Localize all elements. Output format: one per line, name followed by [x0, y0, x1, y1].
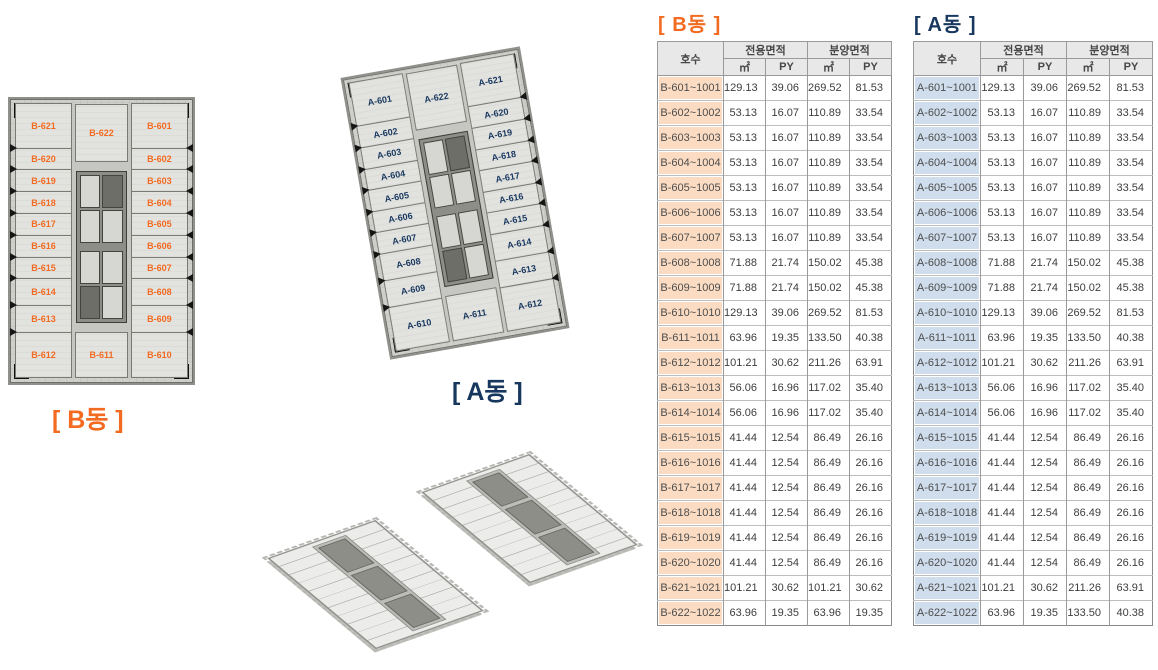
supply-py-cell: 33.54 [850, 201, 892, 226]
core-block [423, 135, 475, 208]
core-block [436, 209, 488, 282]
supply-sqm-cell: 133.50 [808, 326, 850, 351]
unit-label: A-617 [495, 170, 521, 184]
exclusive-sqm-cell: 56.06 [724, 401, 766, 426]
unit-number-cell: A-612~1012 [914, 351, 981, 376]
supply-py-cell: 33.54 [850, 101, 892, 126]
exclusive-py-cell: 16.07 [766, 126, 808, 151]
supply-py-cell: 63.91 [1110, 576, 1153, 601]
table-row: A-614~1014 56.06 16.96 117.02 35.40 [914, 401, 1153, 426]
unit-number-cell: A-619~1019 [914, 526, 981, 551]
exclusive-sqm-cell: 53.13 [981, 126, 1024, 151]
supply-py-cell: 26.16 [850, 476, 892, 501]
supply-py-cell: 33.54 [1110, 126, 1153, 151]
unit-number-cell: B-613~1013 [658, 376, 724, 401]
plan-unit: A-612 [499, 278, 561, 332]
supply-py-cell: 33.54 [1110, 201, 1153, 226]
plan-unit: B-613 [15, 305, 72, 333]
table-row: B-619~1019 41.44 12.54 86.49 26.16 [658, 526, 892, 551]
exclusive-sqm-cell: 53.13 [981, 101, 1024, 126]
supply-sqm-cell: 86.49 [808, 551, 850, 576]
exclusive-py-cell: 16.96 [766, 401, 808, 426]
table-row: A-607~1007 53.13 16.07 110.89 33.54 [914, 226, 1153, 251]
plan-unit: B-608 [131, 278, 188, 306]
supply-sqm-cell: 110.89 [808, 226, 850, 251]
supply-sqm-cell: 110.89 [808, 176, 850, 201]
supply-sqm-cell: 211.26 [1067, 576, 1110, 601]
supply-py-cell: 26.16 [850, 551, 892, 576]
unit-number-cell: B-603~1003 [658, 126, 724, 151]
table-row: B-604~1004 53.13 16.07 110.89 33.54 [658, 151, 892, 176]
unit-label: B-616 [31, 241, 56, 251]
unit-number-cell: A-602~1002 [914, 101, 981, 126]
supply-py-cell: 26.16 [1110, 451, 1153, 476]
supply-sqm-cell: 110.89 [1067, 151, 1110, 176]
plan-unit: A-610 [388, 297, 450, 351]
exclusive-py-cell: 16.07 [1024, 126, 1067, 151]
unit-label: B-604 [147, 198, 172, 208]
table-row: A-606~1006 53.13 16.07 110.89 33.54 [914, 201, 1153, 226]
exclusive-sqm-cell: 63.96 [981, 326, 1024, 351]
exclusive-py-cell: 16.07 [766, 151, 808, 176]
table-row: B-614~1014 56.06 16.96 117.02 35.40 [658, 401, 892, 426]
unit-label: B-614 [31, 287, 56, 297]
table-row: B-609~1009 71.88 21.74 150.02 45.38 [658, 276, 892, 301]
supply-py-cell: 33.54 [850, 151, 892, 176]
table-row: B-608~1008 71.88 21.74 150.02 45.38 [658, 251, 892, 276]
supply-py-cell: 81.53 [1110, 301, 1153, 326]
exclusive-sqm-cell: 63.96 [981, 601, 1024, 626]
exclusive-py-cell: 30.62 [766, 576, 808, 601]
isometric-floorplate-left [267, 520, 484, 649]
supply-sqm-cell: 86.49 [808, 476, 850, 501]
table-row: B-610~1010 129.13 39.06 269.52 81.53 [658, 301, 892, 326]
plan-unit: A-611 [445, 287, 503, 341]
supply-sqm-cell: 133.50 [1067, 601, 1110, 626]
supply-py-cell: 19.35 [850, 601, 892, 626]
supply-py-cell: 26.16 [850, 526, 892, 551]
table-row: B-616~1016 41.44 12.54 86.49 26.16 [658, 451, 892, 476]
unit-label: A-613 [511, 263, 537, 277]
plan-unit: B-603 [131, 169, 188, 192]
col-header-py: PY [766, 59, 808, 76]
exclusive-py-cell: 21.74 [766, 276, 808, 301]
supply-py-cell: 35.40 [1110, 376, 1153, 401]
supply-sqm-cell: 211.26 [1067, 351, 1110, 376]
plan-unit: B-619 [15, 169, 72, 192]
floorplan-a: A-601A-602A-603A-604A-605A-606A-607A-608… [341, 46, 570, 359]
supply-sqm-cell: 110.89 [808, 151, 850, 176]
exclusive-py-cell: 16.96 [1024, 401, 1067, 426]
unit-label: B-618 [31, 198, 56, 208]
plan-unit: B-611 [75, 332, 128, 378]
unit-label: A-610 [406, 317, 432, 331]
exclusive-sqm-cell: 71.88 [724, 251, 766, 276]
supply-sqm-cell: 86.49 [1067, 551, 1110, 576]
col-header-exclusive-area: 전용면적 [981, 42, 1067, 59]
unit-number-cell: B-612~1012 [658, 351, 724, 376]
unit-number-cell: B-611~1011 [658, 326, 724, 351]
supply-sqm-cell: 150.02 [1067, 251, 1110, 276]
exclusive-sqm-cell: 41.44 [724, 451, 766, 476]
exclusive-sqm-cell: 129.13 [981, 301, 1024, 326]
exclusive-py-cell: 19.35 [1024, 601, 1067, 626]
unit-number-cell: B-620~1020 [658, 551, 724, 576]
exclusive-py-cell: 19.35 [1024, 326, 1067, 351]
plan-b-center-column: B-622 B-611 [72, 104, 131, 378]
exclusive-py-cell: 12.54 [766, 551, 808, 576]
table-row: B-621~1021 101.21 30.62 101.21 30.62 [658, 576, 892, 601]
exclusive-py-cell: 12.54 [766, 526, 808, 551]
unit-label: A-608 [395, 256, 421, 270]
supply-py-cell: 81.53 [1110, 76, 1153, 101]
exclusive-sqm-cell: 41.44 [724, 501, 766, 526]
supply-sqm-cell: 86.49 [808, 526, 850, 551]
plan-unit: B-605 [131, 213, 188, 236]
supply-sqm-cell: 117.02 [808, 376, 850, 401]
exclusive-py-cell: 16.07 [766, 176, 808, 201]
table-row: A-615~1015 41.44 12.54 86.49 26.16 [914, 426, 1153, 451]
core-block [80, 175, 123, 243]
unit-number-cell: B-608~1008 [658, 251, 724, 276]
exclusive-sqm-cell: 71.88 [981, 276, 1024, 301]
exclusive-sqm-cell: 41.44 [981, 476, 1024, 501]
unit-number-cell: B-614~1014 [658, 401, 724, 426]
page-background: { "colors":{"accent_orange":"#F26B21","a… [0, 0, 1158, 670]
unit-label: B-617 [31, 219, 56, 229]
table-row: A-616~1016 41.44 12.54 86.49 26.16 [914, 451, 1153, 476]
exclusive-sqm-cell: 129.13 [724, 76, 766, 101]
plan-unit: A-622 [406, 65, 466, 131]
unit-label: B-613 [31, 314, 56, 324]
unit-number-cell: A-607~1007 [914, 226, 981, 251]
table-row: A-611~1011 63.96 19.35 133.50 40.38 [914, 326, 1153, 351]
plan-b-caption: [ B동 ] [52, 400, 124, 436]
plan-unit: B-614 [15, 278, 72, 306]
table-row: B-602~1002 53.13 16.07 110.89 33.54 [658, 101, 892, 126]
unit-number-cell: B-607~1007 [658, 226, 724, 251]
table-row: A-608~1008 71.88 21.74 150.02 45.38 [914, 251, 1153, 276]
table-row: B-613~1013 56.06 16.96 117.02 35.40 [658, 376, 892, 401]
exclusive-sqm-cell: 41.44 [981, 501, 1024, 526]
exclusive-py-cell: 16.96 [1024, 376, 1067, 401]
supply-sqm-cell: 86.49 [1067, 451, 1110, 476]
plan-unit: B-618 [15, 191, 72, 214]
unit-number-cell: A-601~1001 [914, 76, 981, 101]
unit-label: B-620 [31, 154, 56, 164]
supply-sqm-cell: 110.89 [1067, 101, 1110, 126]
supply-py-cell: 45.38 [850, 251, 892, 276]
exclusive-py-cell: 12.54 [766, 426, 808, 451]
unit-label: B-619 [31, 176, 56, 186]
supply-py-cell: 40.38 [850, 326, 892, 351]
col-header-sqm: ㎡ [808, 59, 850, 76]
exclusive-sqm-cell: 101.21 [724, 576, 766, 601]
exclusive-py-cell: 39.06 [766, 301, 808, 326]
unit-label: A-620 [483, 106, 509, 120]
supply-py-cell: 35.40 [850, 376, 892, 401]
supply-sqm-cell: 86.49 [1067, 426, 1110, 451]
building-core [76, 171, 127, 323]
table-row: A-610~1010 129.13 39.06 269.52 81.53 [914, 301, 1153, 326]
unit-label: A-615 [502, 213, 528, 227]
exclusive-py-cell: 16.07 [766, 101, 808, 126]
plan-b-left-column: B-621B-620B-619B-618B-617B-616B-615B-614… [15, 104, 72, 378]
unit-number-cell: A-608~1008 [914, 251, 981, 276]
unit-number-cell: A-613~1013 [914, 376, 981, 401]
isometric-core [466, 469, 600, 565]
unit-label: A-619 [487, 127, 513, 141]
exclusive-py-cell: 21.74 [1024, 276, 1067, 301]
unit-number-cell: B-601~1001 [658, 76, 724, 101]
table-row: A-602~1002 53.13 16.07 110.89 33.54 [914, 101, 1153, 126]
plan-unit: B-621 [15, 103, 72, 149]
supply-py-cell: 40.38 [1110, 326, 1153, 351]
unit-number-cell: A-610~1010 [914, 301, 981, 326]
table-row: B-611~1011 63.96 19.35 133.50 40.38 [658, 326, 892, 351]
plan-unit: B-610 [131, 332, 188, 378]
exclusive-sqm-cell: 41.44 [981, 451, 1024, 476]
col-header-exclusive-area: 전용면적 [724, 42, 808, 59]
table-row: A-604~1004 53.13 16.07 110.89 33.54 [914, 151, 1153, 176]
unit-label: A-622 [423, 91, 449, 105]
plan-unit: B-617 [15, 213, 72, 236]
supply-sqm-cell: 150.02 [808, 276, 850, 301]
table-row: A-621~1021 101.21 30.62 211.26 63.91 [914, 576, 1153, 601]
unit-number-cell: B-609~1009 [658, 276, 724, 301]
unit-label: B-603 [147, 176, 172, 186]
exclusive-sqm-cell: 41.44 [981, 426, 1024, 451]
unit-label: B-612 [31, 350, 56, 360]
unit-label: A-606 [388, 211, 414, 225]
unit-label: A-604 [380, 168, 406, 182]
exclusive-py-cell: 16.07 [1024, 176, 1067, 201]
exclusive-sqm-cell: 53.13 [724, 226, 766, 251]
supply-py-cell: 26.16 [1110, 476, 1153, 501]
table-row: B-601~1001 129.13 39.06 269.52 81.53 [658, 76, 892, 101]
plan-unit: B-601 [131, 103, 188, 149]
supply-sqm-cell: 150.02 [808, 251, 850, 276]
exclusive-py-cell: 21.74 [766, 251, 808, 276]
unit-number-cell: B-605~1005 [658, 176, 724, 201]
area-table-b: 호수 전용면적 분양면적 ㎡ PY ㎡ PY B-601~1001 129.13… [657, 41, 892, 626]
exclusive-py-cell: 12.54 [1024, 451, 1067, 476]
exclusive-py-cell: 16.07 [766, 201, 808, 226]
unit-number-cell: A-611~1011 [914, 326, 981, 351]
exclusive-py-cell: 16.07 [1024, 226, 1067, 251]
isometric-core [312, 535, 446, 631]
supply-py-cell: 81.53 [850, 301, 892, 326]
unit-number-cell: A-603~1003 [914, 126, 981, 151]
exclusive-py-cell: 12.54 [1024, 551, 1067, 576]
exclusive-sqm-cell: 63.96 [724, 326, 766, 351]
unit-number-cell: B-622~1022 [658, 601, 724, 626]
unit-label: B-621 [31, 121, 56, 131]
col-header-py: PY [1110, 59, 1153, 76]
unit-number-cell: B-621~1021 [658, 576, 724, 601]
supply-sqm-cell: 86.49 [1067, 526, 1110, 551]
unit-number-cell: A-606~1006 [914, 201, 981, 226]
supply-sqm-cell: 86.49 [808, 451, 850, 476]
unit-label: B-606 [147, 241, 172, 251]
plan-unit: B-606 [131, 235, 188, 258]
plan-unit: B-616 [15, 235, 72, 258]
table-row: A-613~1013 56.06 16.96 117.02 35.40 [914, 376, 1153, 401]
unit-number-cell: B-617~1017 [658, 476, 724, 501]
unit-label: A-605 [384, 189, 410, 203]
unit-number-cell: B-610~1010 [658, 301, 724, 326]
supply-py-cell: 33.54 [1110, 101, 1153, 126]
unit-label: B-622 [89, 128, 114, 138]
exclusive-sqm-cell: 71.88 [981, 251, 1024, 276]
unit-number-cell: A-609~1009 [914, 276, 981, 301]
exclusive-sqm-cell: 129.13 [981, 76, 1024, 101]
table-row: A-619~1019 41.44 12.54 86.49 26.16 [914, 526, 1153, 551]
unit-label: B-605 [147, 219, 172, 229]
unit-number-cell: B-616~1016 [658, 451, 724, 476]
supply-sqm-cell: 86.49 [808, 426, 850, 451]
col-header-supply-area: 분양면적 [808, 42, 892, 59]
unit-number-cell: A-615~1015 [914, 426, 981, 451]
exclusive-sqm-cell: 53.13 [981, 201, 1024, 226]
exclusive-sqm-cell: 53.13 [724, 126, 766, 151]
table-row: B-607~1007 53.13 16.07 110.89 33.54 [658, 226, 892, 251]
unit-label: A-603 [376, 147, 402, 161]
plan-unit: B-607 [131, 257, 188, 280]
table-row: A-603~1003 53.13 16.07 110.89 33.54 [914, 126, 1153, 151]
exclusive-sqm-cell: 41.44 [724, 551, 766, 576]
unit-label: B-602 [147, 154, 172, 164]
unit-label: A-609 [400, 282, 426, 296]
supply-sqm-cell: 110.89 [808, 126, 850, 151]
col-header-supply-area: 분양면적 [1067, 42, 1153, 59]
supply-sqm-cell: 110.89 [1067, 201, 1110, 226]
unit-number-cell: B-606~1006 [658, 201, 724, 226]
unit-label: A-621 [478, 74, 504, 88]
col-header-unit: 호수 [658, 42, 724, 76]
exclusive-py-cell: 16.07 [1024, 201, 1067, 226]
unit-label: B-609 [147, 314, 172, 324]
supply-sqm-cell: 117.02 [808, 401, 850, 426]
exclusive-py-cell: 16.07 [1024, 101, 1067, 126]
plan-unit: B-602 [131, 148, 188, 171]
table-row: B-606~1006 53.13 16.07 110.89 33.54 [658, 201, 892, 226]
exclusive-sqm-cell: 53.13 [981, 176, 1024, 201]
table-row: B-620~1020 41.44 12.54 86.49 26.16 [658, 551, 892, 576]
supply-py-cell: 33.54 [850, 126, 892, 151]
table-row: A-618~1018 41.44 12.54 86.49 26.16 [914, 501, 1153, 526]
unit-label: B-608 [147, 287, 172, 297]
exclusive-sqm-cell: 41.44 [724, 476, 766, 501]
unit-label: A-614 [506, 236, 532, 250]
supply-sqm-cell: 150.02 [1067, 276, 1110, 301]
table-row: A-617~1017 41.44 12.54 86.49 26.16 [914, 476, 1153, 501]
exclusive-py-cell: 39.06 [1024, 76, 1067, 101]
supply-py-cell: 40.38 [1110, 601, 1153, 626]
unit-number-cell: A-604~1004 [914, 151, 981, 176]
table-row: B-605~1005 53.13 16.07 110.89 33.54 [658, 176, 892, 201]
unit-label: A-616 [498, 191, 524, 205]
supply-sqm-cell: 110.89 [808, 101, 850, 126]
supply-py-cell: 26.16 [1110, 501, 1153, 526]
supply-sqm-cell: 269.52 [1067, 76, 1110, 101]
exclusive-py-cell: 39.06 [766, 76, 808, 101]
supply-sqm-cell: 110.89 [1067, 176, 1110, 201]
exclusive-sqm-cell: 53.13 [981, 226, 1024, 251]
exclusive-sqm-cell: 53.13 [981, 151, 1024, 176]
supply-py-cell: 26.16 [850, 426, 892, 451]
exclusive-py-cell: 30.62 [1024, 576, 1067, 601]
supply-py-cell: 45.38 [1110, 276, 1153, 301]
supply-py-cell: 26.16 [850, 451, 892, 476]
supply-sqm-cell: 211.26 [808, 351, 850, 376]
exclusive-sqm-cell: 56.06 [981, 376, 1024, 401]
exclusive-py-cell: 19.35 [766, 601, 808, 626]
supply-sqm-cell: 269.52 [1067, 301, 1110, 326]
unit-number-cell: A-621~1021 [914, 576, 981, 601]
exclusive-sqm-cell: 41.44 [981, 526, 1024, 551]
table-row: B-622~1022 63.96 19.35 63.96 19.35 [658, 601, 892, 626]
unit-label: A-611 [462, 307, 487, 321]
supply-py-cell: 45.38 [850, 276, 892, 301]
supply-py-cell: 63.91 [1110, 351, 1153, 376]
unit-number-cell: B-602~1002 [658, 101, 724, 126]
supply-py-cell: 30.62 [850, 576, 892, 601]
exclusive-sqm-cell: 129.13 [724, 301, 766, 326]
unit-label: B-615 [31, 263, 56, 273]
unit-label: A-618 [491, 149, 517, 163]
exclusive-py-cell: 12.54 [766, 501, 808, 526]
exclusive-py-cell: 12.54 [766, 476, 808, 501]
table-row: A-609~1009 71.88 21.74 150.02 45.38 [914, 276, 1153, 301]
plan-unit: B-615 [15, 257, 72, 280]
area-table-a: 호수 전용면적 분양면적 ㎡ PY ㎡ PY A-601~1001 129.13… [913, 41, 1153, 626]
exclusive-py-cell: 30.62 [1024, 351, 1067, 376]
unit-number-cell: B-619~1019 [658, 526, 724, 551]
exclusive-py-cell: 16.07 [1024, 151, 1067, 176]
supply-py-cell: 35.40 [1110, 401, 1153, 426]
supply-py-cell: 26.16 [1110, 526, 1153, 551]
plan-unit: B-612 [15, 332, 72, 378]
unit-label: B-607 [147, 263, 172, 273]
exclusive-py-cell: 19.35 [766, 326, 808, 351]
unit-label: A-612 [517, 298, 543, 312]
table-row: A-605~1005 53.13 16.07 110.89 33.54 [914, 176, 1153, 201]
supply-sqm-cell: 101.21 [808, 576, 850, 601]
exclusive-sqm-cell: 53.13 [724, 176, 766, 201]
supply-py-cell: 26.16 [850, 501, 892, 526]
exclusive-sqm-cell: 41.44 [724, 526, 766, 551]
supply-sqm-cell: 110.89 [1067, 226, 1110, 251]
table-row: B-603~1003 53.13 16.07 110.89 33.54 [658, 126, 892, 151]
plan-unit: B-620 [15, 148, 72, 171]
floorplan-b: B-621B-620B-619B-618B-617B-616B-615B-614… [8, 97, 195, 385]
supply-sqm-cell: 117.02 [1067, 376, 1110, 401]
exclusive-sqm-cell: 41.44 [981, 551, 1024, 576]
exclusive-py-cell: 12.54 [1024, 476, 1067, 501]
supply-py-cell: 33.54 [850, 176, 892, 201]
col-header-sqm: ㎡ [981, 59, 1024, 76]
supply-sqm-cell: 110.89 [808, 201, 850, 226]
exclusive-py-cell: 21.74 [1024, 251, 1067, 276]
exclusive-sqm-cell: 101.21 [724, 351, 766, 376]
supply-sqm-cell: 86.49 [1067, 476, 1110, 501]
table-row: A-601~1001 129.13 39.06 269.52 81.53 [914, 76, 1153, 101]
exclusive-sqm-cell: 41.44 [724, 426, 766, 451]
col-header-py: PY [850, 59, 892, 76]
plan-a-caption: [ A동 ] [452, 372, 523, 408]
supply-sqm-cell: 63.96 [808, 601, 850, 626]
